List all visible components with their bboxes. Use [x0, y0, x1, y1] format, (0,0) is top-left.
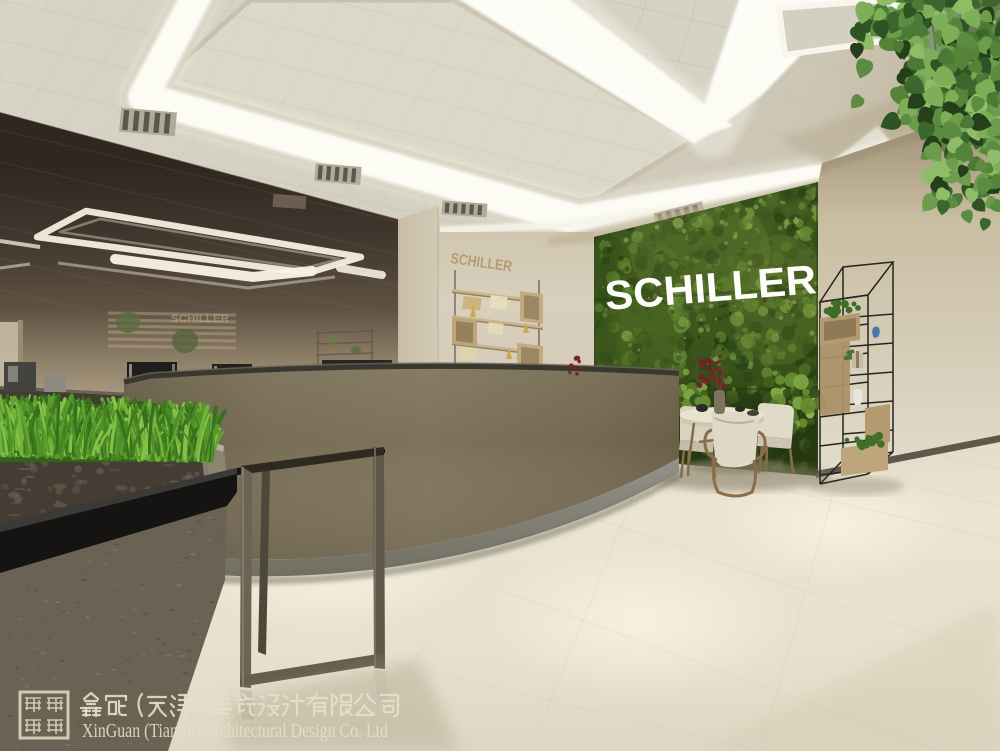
svg-text:SCHILLER: SCHILLER [171, 313, 229, 325]
svg-text:XinGuan (Tianjin) Architectura: XinGuan (Tianjin) Architectural Design C… [82, 721, 388, 742]
